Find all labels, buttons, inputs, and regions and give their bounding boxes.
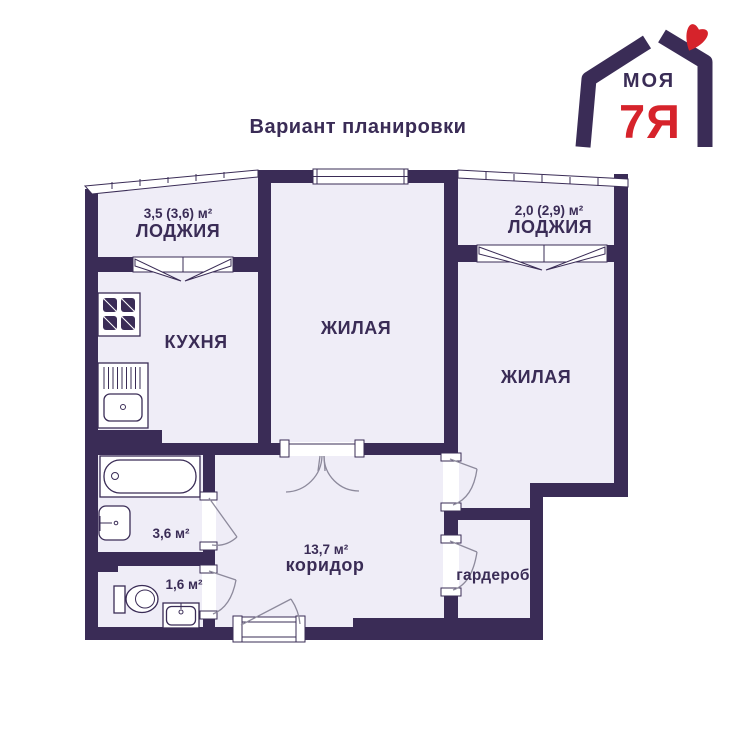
- kitchen-sink-icon: [98, 363, 148, 428]
- living-center-window: [313, 169, 408, 184]
- stove-icon: [98, 293, 140, 336]
- corridor-label: коридор: [286, 555, 365, 575]
- bathroom-sink-icon: [99, 506, 130, 540]
- loggia-right-area: 2,0 (2,9) м²: [515, 203, 584, 218]
- toilet-area: 1,6 м²: [166, 577, 204, 592]
- living-right-label: ЖИЛАЯ: [500, 367, 571, 387]
- bathroom-area: 3,6 м²: [153, 526, 191, 541]
- logo: МОЯ 7Я: [583, 23, 710, 148]
- logo-word-bottom: 7Я: [619, 95, 681, 148]
- living-center-label: ЖИЛАЯ: [320, 318, 391, 338]
- loggia-left-area: 3,5 (3,6) м²: [144, 206, 213, 221]
- toilet-icon: [114, 586, 158, 614]
- toilet-sink-icon: [163, 603, 199, 628]
- kitchen-label: КУХНЯ: [164, 332, 227, 352]
- floor-plan-page: МОЯ 7Я Вариант планировки: [0, 0, 750, 743]
- page-title: Вариант планировки: [250, 116, 467, 138]
- loggia-left-label: ЛОДЖИЯ: [136, 221, 220, 241]
- wardrobe-label: гардероб: [456, 567, 530, 584]
- logo-word-top: МОЯ: [623, 70, 675, 92]
- bathtub-icon: [100, 456, 200, 497]
- loggia-right-label: ЛОДЖИЯ: [508, 217, 592, 237]
